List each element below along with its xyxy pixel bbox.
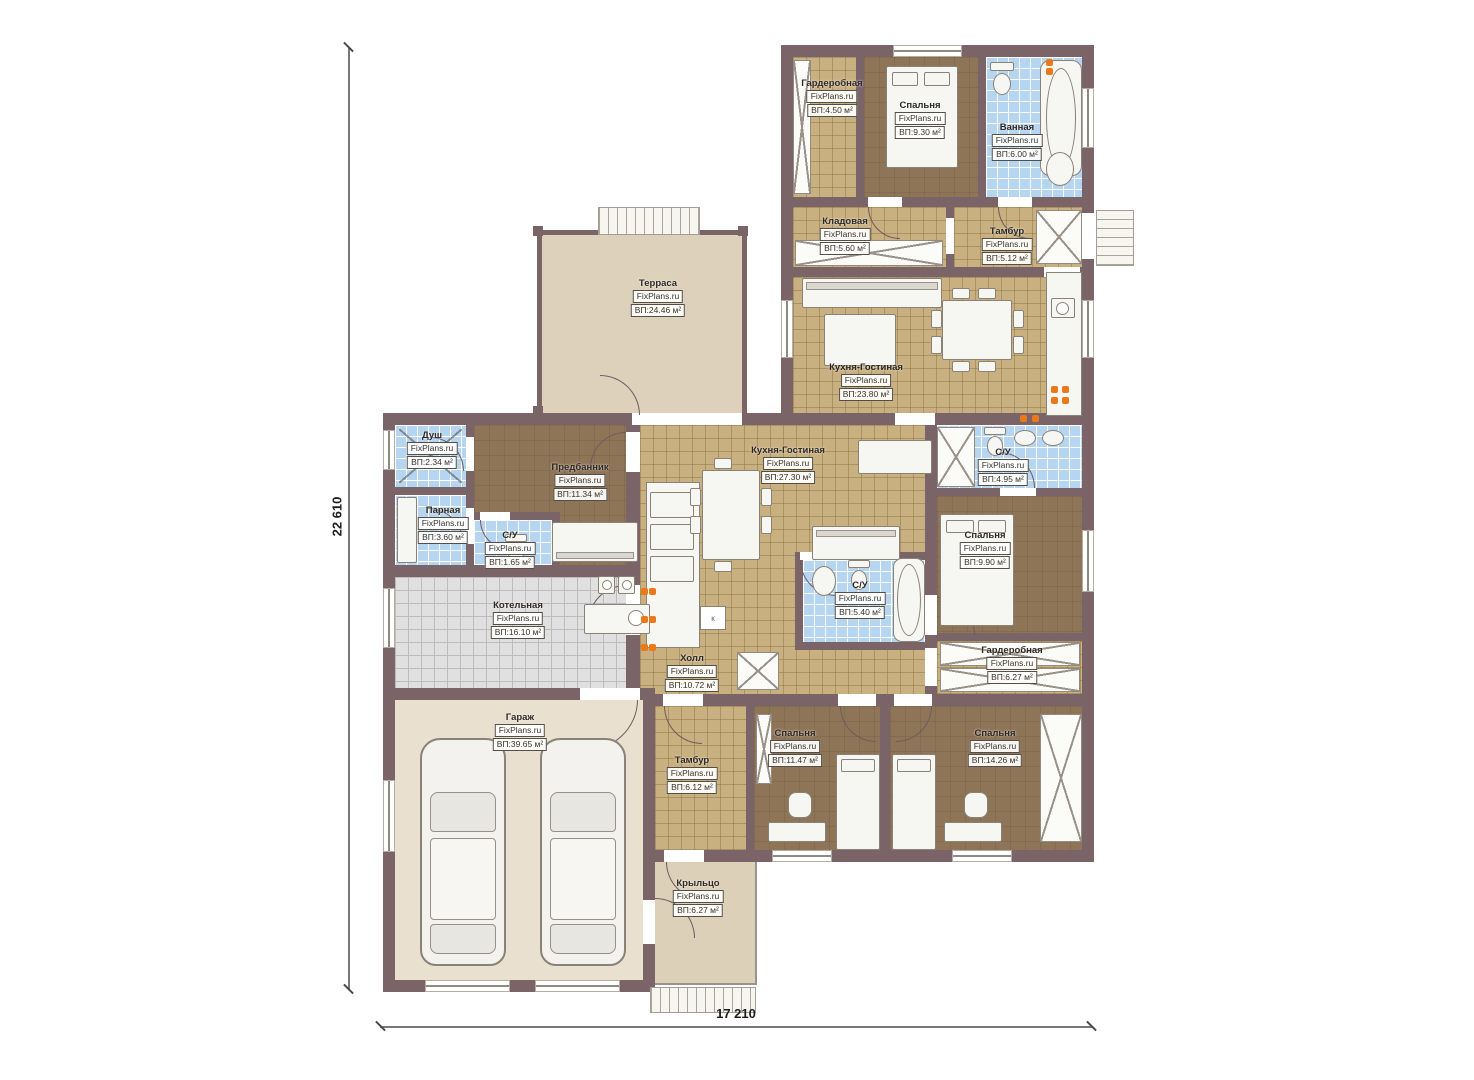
room-name: Холл (680, 653, 704, 664)
wall-segment (746, 706, 754, 850)
panel-dot (641, 616, 648, 623)
wall-segment (395, 487, 466, 495)
room-area: ВП:24.46 м² (631, 304, 685, 317)
wall-segment (880, 706, 890, 850)
watermark: FixPlans.ru (493, 612, 544, 625)
kitchen-counter (1046, 272, 1082, 416)
room-label-pantry: Кладовая FixPlans.ru ВП:5.60 м² (820, 216, 871, 255)
room-label-garage: Гараж FixPlans.ru ВП:39.65 м² (493, 712, 547, 751)
room-name: С/У (995, 447, 1010, 458)
chair (931, 310, 942, 328)
pillow (892, 72, 918, 86)
door-opening (663, 694, 703, 706)
door-opening (580, 688, 640, 700)
watermark: FixPlans.ru (841, 374, 892, 387)
terrace-stairs (598, 207, 700, 235)
room-name: Душ (422, 430, 442, 441)
window (781, 300, 793, 358)
room-name: Кухня-Гостиная (751, 445, 825, 456)
watermark: FixPlans.ru (418, 517, 469, 530)
door-opening (480, 512, 510, 520)
watermark: FixPlans.ru (485, 542, 536, 555)
washer-drum (602, 580, 612, 590)
toilet-tank (990, 62, 1014, 71)
room-area: ВП:11.34 м² (553, 488, 607, 501)
sofa-back (816, 530, 896, 537)
room-name: Ванная (1000, 122, 1034, 133)
room-name: Гардеробная (981, 645, 1042, 656)
chair (690, 488, 701, 506)
watermark: FixPlans.ru (667, 665, 718, 678)
room-name: С/У (502, 530, 517, 541)
window (1082, 88, 1094, 148)
watermark: FixPlans.ru (978, 459, 1029, 472)
bathtub-basin (897, 564, 921, 636)
dimension-height-label: 22 610 (330, 469, 345, 565)
panel-dot (649, 616, 656, 623)
porch-edge (655, 983, 757, 985)
room-label-wardrobe-627: Гардеробная FixPlans.ru ВП:6.27 м² (981, 645, 1042, 684)
wall-segment (793, 267, 1082, 277)
watermark: FixPlans.ru (807, 90, 858, 103)
panel-dot (649, 644, 656, 651)
watermark: FixPlans.ru (820, 228, 871, 241)
sofa-back (556, 552, 634, 559)
chair (952, 361, 970, 372)
terrace-wall (537, 230, 542, 413)
kitchen-island (824, 314, 896, 366)
toilet-bowl (993, 73, 1011, 95)
room-label-shower: Душ FixPlans.ru ВП:2.34 м² (407, 430, 458, 469)
sofa-back (806, 282, 938, 290)
wall-segment (781, 57, 793, 425)
chair (761, 516, 772, 534)
heater-dot (1020, 415, 1027, 422)
room-area: ВП:9.90 м² (960, 556, 1010, 569)
wardrobe-closet (1040, 714, 1082, 842)
room-label-bedroom-1426: Спальня FixPlans.ru ВП:14.26 м² (968, 728, 1022, 767)
door-opening (925, 648, 937, 686)
chair (761, 488, 772, 506)
chair (714, 561, 732, 572)
room-area: ВП:2.34 м² (407, 456, 457, 469)
window (772, 850, 832, 862)
room-label-sauna-anteroom: Предбанник FixPlans.ru ВП:11.34 м² (551, 462, 608, 501)
shower-cabin (937, 427, 975, 487)
room-area: ВП:16.10 м² (491, 626, 545, 639)
stove-burner (1051, 386, 1058, 393)
hall-rug (737, 652, 779, 690)
room-area: ВП:9.30 м² (895, 126, 945, 139)
room-area: ВП:23.80 м² (839, 388, 893, 401)
chair (978, 361, 996, 372)
room-area: ВП:27.30 м² (761, 471, 815, 484)
car-roof (430, 838, 496, 920)
vestibule-closet (1036, 210, 1082, 264)
pillow (841, 759, 875, 772)
pillow (897, 759, 931, 772)
car-rear-window (430, 924, 496, 954)
room-label-bedroom-ne: Спальня FixPlans.ru ВП:9.30 м² (895, 100, 946, 139)
door-opening (664, 850, 704, 862)
wall-segment (1082, 45, 1094, 862)
porch-edge (755, 862, 757, 985)
floor-terrace (542, 235, 742, 413)
door-opening (626, 432, 640, 472)
toilet-tank (848, 560, 870, 568)
shaft-label: к (711, 614, 715, 623)
watermark: FixPlans.ru (992, 134, 1043, 147)
room-label-kitchen-ne: Кухня-Гостиная FixPlans.ru ВП:23.80 м² (829, 362, 903, 401)
room-name: Парная (426, 505, 460, 516)
chair (952, 288, 970, 299)
room-area: ВП:5.12 м² (982, 252, 1032, 265)
dining-table (942, 300, 1012, 360)
watermark: FixPlans.ru (960, 542, 1011, 555)
window (383, 588, 395, 648)
chair (690, 516, 701, 534)
door-opening (946, 218, 954, 254)
watermark: FixPlans.ru (495, 724, 546, 737)
car-windshield (550, 792, 616, 832)
window (1082, 300, 1094, 358)
dimension-line-horizontal (380, 1026, 1092, 1028)
desk (944, 822, 1002, 842)
room-name: Котельная (493, 600, 543, 611)
door-opening (466, 437, 474, 471)
tv-cabinet (858, 440, 932, 474)
room-label-bedroom-990: Спальня FixPlans.ru ВП:9.90 м² (960, 530, 1011, 569)
pillow (924, 72, 950, 86)
terrace-post (738, 226, 748, 236)
room-label-wardrobe-ne: Гардеробная FixPlans.ru ВП:4.50 м² (801, 78, 862, 117)
stove-burner (1051, 397, 1058, 404)
entry-door-opening (1082, 213, 1094, 259)
watermark: FixPlans.ru (770, 740, 821, 753)
door-opening (632, 413, 742, 425)
heater-dot (1046, 59, 1053, 66)
room-label-bedroom-1147: Спальня FixPlans.ru ВП:11.47 м² (768, 728, 822, 767)
room-name: Спальня (774, 728, 815, 739)
toilet-tank (984, 427, 1006, 435)
door-opening (1000, 488, 1036, 496)
door-opening (868, 197, 902, 207)
sink (1042, 430, 1064, 446)
room-name: Спальня (964, 530, 1005, 541)
heater-dot (1046, 68, 1053, 75)
heater-dot (1032, 415, 1039, 422)
watermark: FixPlans.ru (633, 290, 684, 303)
watermark: FixPlans.ru (763, 457, 814, 470)
garage-door (425, 980, 510, 992)
room-area: ВП:3.60 м² (418, 531, 468, 544)
wall-segment (795, 642, 933, 650)
window (893, 45, 962, 57)
room-area: ВП:5.40 м² (835, 606, 885, 619)
chair (1013, 310, 1024, 328)
window (383, 780, 395, 852)
room-name: Кухня-Гостиная (829, 362, 903, 373)
room-area: ВП:39.65 м² (493, 738, 547, 751)
sink (1014, 430, 1036, 446)
room-label-vestibule-ne: Тамбур FixPlans.ru ВП:5.12 м² (982, 226, 1033, 265)
room-label-kitchen-central: Кухня-Гостиная FixPlans.ru ВП:27.30 м² (751, 445, 825, 484)
appliance (650, 492, 694, 518)
room-label-porch: Крыльцо FixPlans.ru ВП:6.27 м² (673, 878, 724, 917)
appliance (650, 556, 694, 582)
panel-dot (641, 588, 648, 595)
washer-drum (622, 580, 632, 590)
sink (812, 566, 836, 596)
room-label-steam-room: Парная FixPlans.ru ВП:3.60 м² (418, 505, 469, 544)
room-label-bathroom: Ванная FixPlans.ru ВП:6.00 м² (992, 122, 1043, 161)
chair (714, 458, 732, 469)
stove-burner (1062, 397, 1069, 404)
room-area: ВП:10.72 м² (665, 679, 719, 692)
floor-plan: к Гардеробная FixPlans.ru (0, 0, 1474, 1080)
watermark: FixPlans.ru (835, 592, 886, 605)
room-name: Гараж (506, 712, 534, 723)
room-name: Гардеробная (801, 78, 862, 89)
room-name: Спальня (899, 100, 940, 111)
room-label-terrace: Терраса FixPlans.ru ВП:24.46 м² (631, 278, 685, 317)
room-area: ВП:6.00 м² (992, 148, 1042, 161)
room-area: ВП:4.50 м² (807, 104, 857, 117)
room-label-hall: Холл FixPlans.ru ВП:10.72 м² (665, 653, 719, 692)
watermark: FixPlans.ru (407, 442, 458, 455)
room-label-boiler-room: Котельная FixPlans.ru ВП:16.10 м² (491, 600, 545, 639)
room-label-vestibule-612: Тамбур FixPlans.ru ВП:6.12 м² (667, 755, 718, 794)
room-name: Предбанник (551, 462, 608, 473)
room-area: ВП:6.27 м² (673, 904, 723, 917)
wall-segment (643, 700, 655, 992)
watermark: FixPlans.ru (673, 890, 724, 903)
chair (978, 288, 996, 299)
room-area: ВП:11.47 м² (768, 754, 822, 767)
car-rear-window (550, 924, 616, 954)
car-windshield (430, 792, 496, 832)
terrace-post (533, 226, 543, 236)
room-area: ВП:5.60 м² (820, 242, 870, 255)
entry-step (1096, 210, 1134, 266)
watermark: FixPlans.ru (667, 767, 718, 780)
terrace-post (533, 406, 543, 416)
terrace-wall (742, 230, 747, 413)
wall-segment (978, 57, 986, 197)
dimension-width-label: 17 210 (688, 1006, 784, 1021)
garage-door (535, 980, 620, 992)
chair (931, 336, 942, 354)
watermark: FixPlans.ru (970, 740, 1021, 753)
door-opening (998, 197, 1032, 207)
room-area: ВП:14.26 м² (968, 754, 1022, 767)
window (1082, 530, 1094, 592)
room-label-wc-small: С/У FixPlans.ru ВП:1.65 м² (485, 530, 536, 569)
watermark: FixPlans.ru (895, 112, 946, 125)
room-name: Крыльцо (676, 878, 719, 889)
door-opening (643, 900, 655, 944)
desk (768, 822, 826, 842)
dimension-line-vertical (348, 47, 350, 990)
room-area: ВП:6.12 м² (667, 781, 717, 794)
door-opening (838, 694, 876, 706)
watermark: FixPlans.ru (555, 474, 606, 487)
door-opening (895, 413, 935, 425)
sink (1046, 152, 1074, 186)
room-label-wc-540: С/У FixPlans.ru ВП:5.40 м² (835, 580, 886, 619)
room-name: Тамбур (675, 755, 709, 766)
room-label-wc-495: С/У FixPlans.ru ВП:4.95 м² (978, 447, 1029, 486)
panel-dot (649, 588, 656, 595)
watermark: FixPlans.ru (982, 238, 1033, 251)
room-area: ВП:1.65 м² (485, 556, 535, 569)
chair (788, 792, 812, 818)
sink-basin (1056, 302, 1069, 315)
door-opening (925, 595, 937, 635)
wall-segment (643, 850, 1094, 862)
chair (1013, 336, 1024, 354)
window (383, 430, 395, 470)
chair (964, 792, 988, 818)
room-name: Тамбур (990, 226, 1024, 237)
room-name: Спальня (974, 728, 1015, 739)
car-roof (550, 838, 616, 920)
appliance (650, 524, 694, 550)
watermark: FixPlans.ru (987, 657, 1038, 670)
room-area: ВП:4.95 м² (978, 473, 1028, 486)
room-name: Кладовая (822, 216, 868, 227)
window (952, 850, 1012, 862)
room-name: Терраса (639, 278, 677, 289)
wall-segment (793, 197, 1082, 207)
panel-dot (641, 644, 648, 651)
shaft-box: к (700, 606, 726, 630)
room-name: С/У (852, 580, 867, 591)
door-opening (894, 694, 932, 706)
room-area: ВП:6.27 м² (987, 671, 1037, 684)
sauna-bench (397, 497, 417, 563)
stove-burner (1062, 386, 1069, 393)
